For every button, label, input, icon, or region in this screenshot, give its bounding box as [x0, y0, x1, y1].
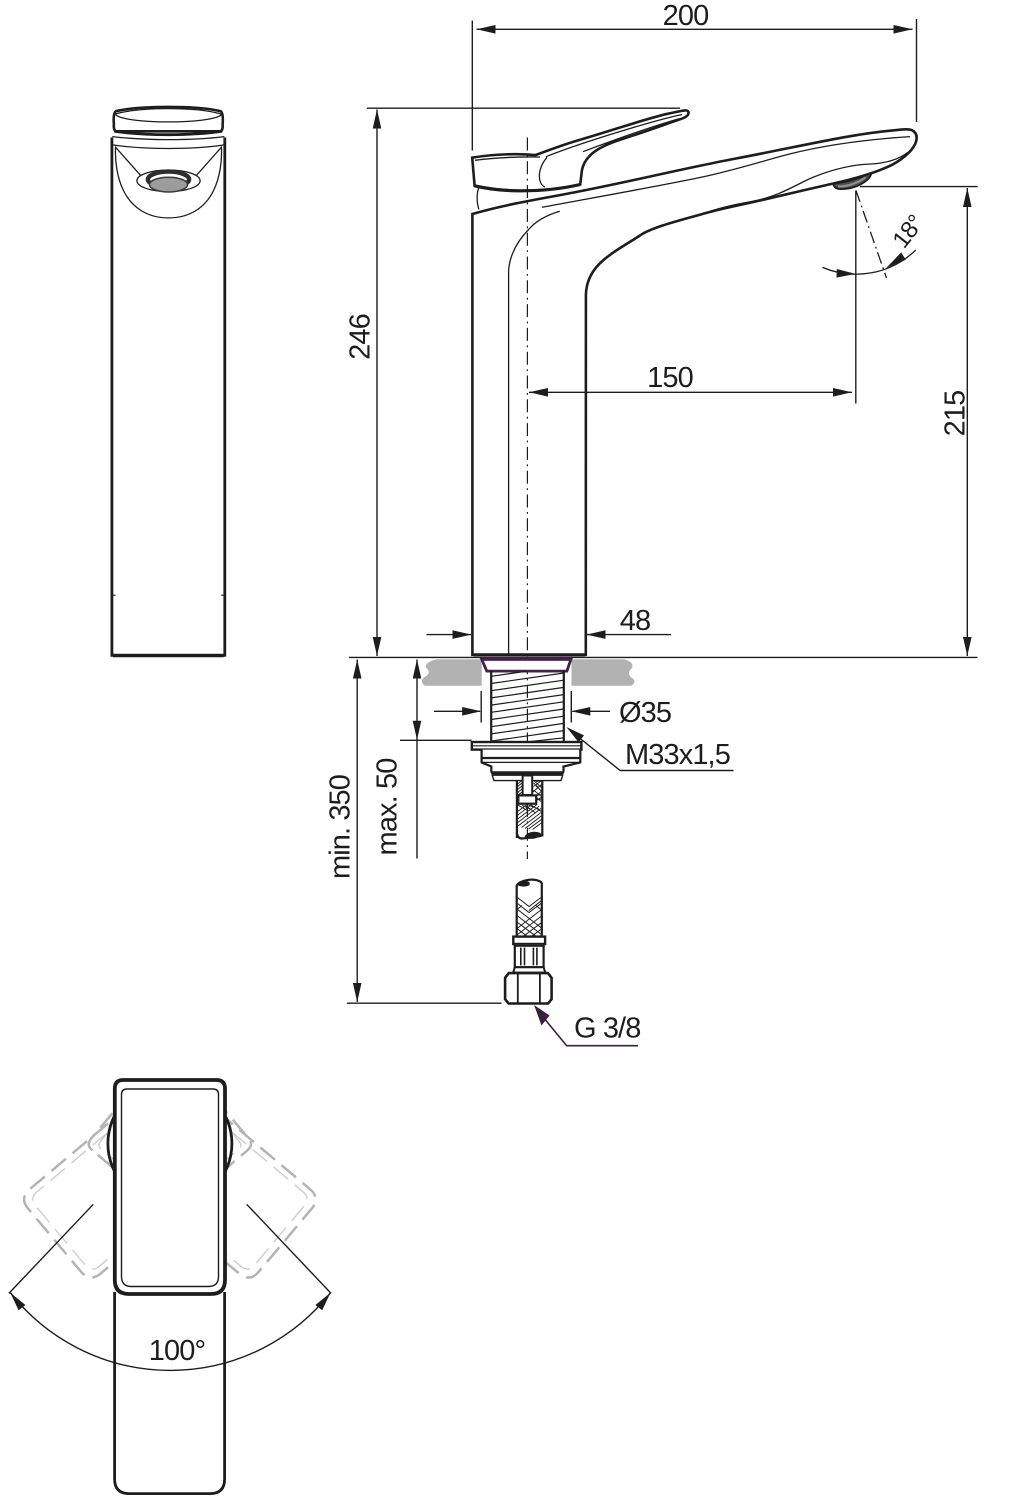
svg-text:100°: 100° — [149, 1335, 205, 1367]
svg-text:M33x1,5: M33x1,5 — [625, 739, 730, 771]
svg-text:max. 50: max. 50 — [372, 759, 404, 856]
svg-text:Ø35: Ø35 — [619, 697, 671, 729]
svg-text:215: 215 — [940, 391, 972, 437]
svg-text:246: 246 — [345, 314, 377, 360]
svg-text:150: 150 — [647, 362, 693, 394]
svg-text:48: 48 — [620, 605, 650, 637]
svg-text:200: 200 — [663, 0, 709, 32]
svg-text:min. 350: min. 350 — [325, 775, 357, 879]
svg-text:G 3/8: G 3/8 — [574, 1013, 640, 1045]
svg-text:18°: 18° — [887, 210, 929, 253]
